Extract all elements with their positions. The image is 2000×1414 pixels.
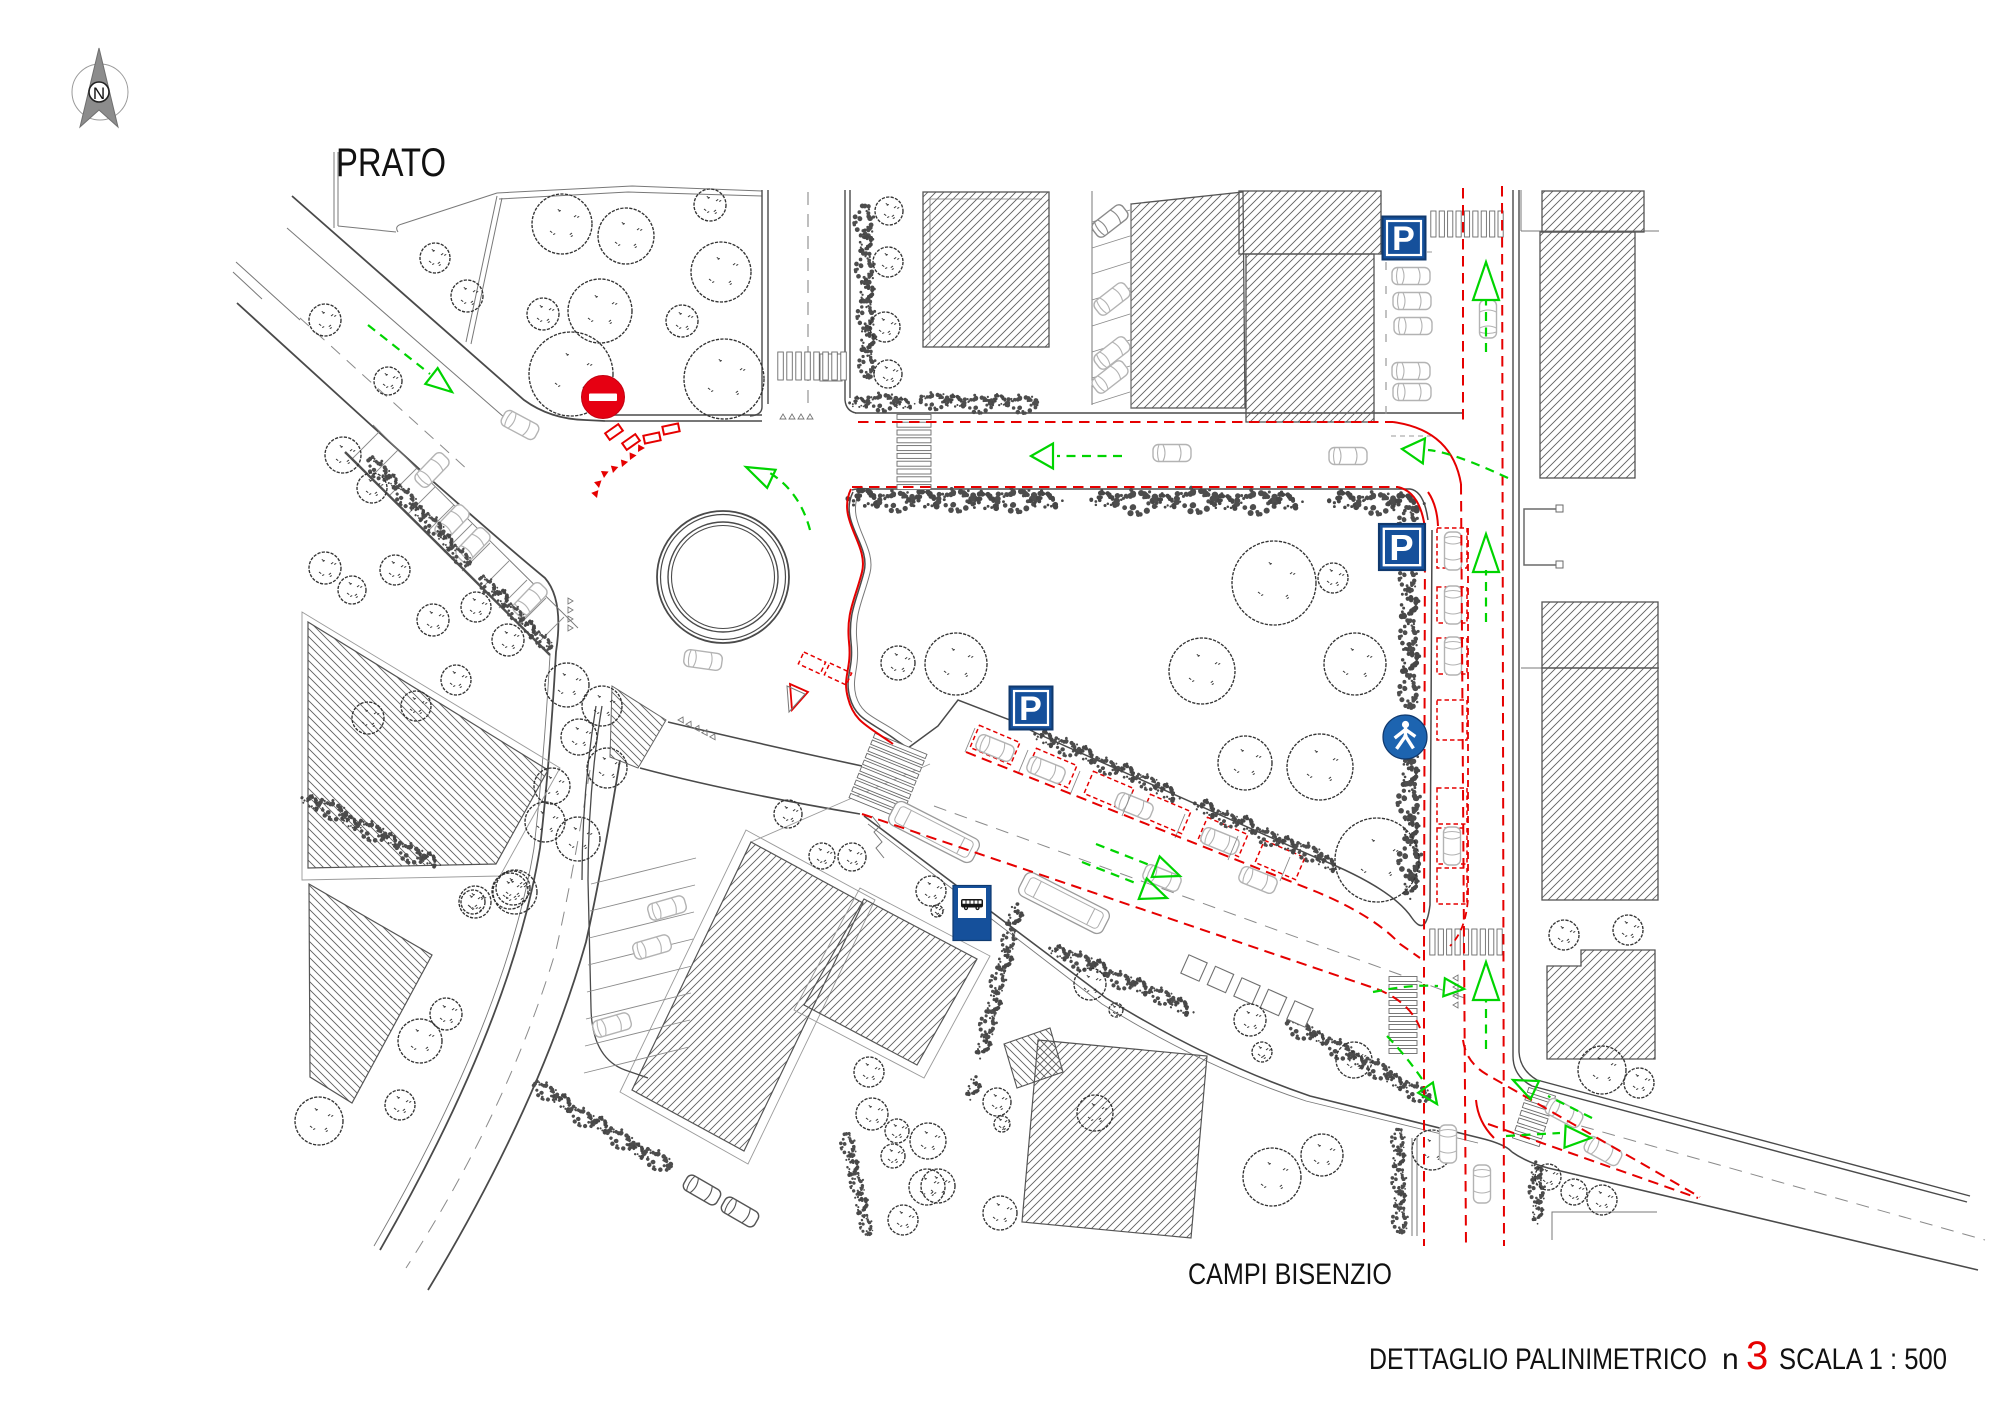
svg-text:P: P [1389,527,1413,568]
svg-text:CAMPI BISENZIO: CAMPI BISENZIO [1188,1258,1392,1291]
svg-text:PRATO: PRATO [336,141,446,185]
svg-text:P: P [1019,690,1042,728]
svg-text:N: N [93,84,105,103]
svg-text:P: P [1392,220,1415,258]
